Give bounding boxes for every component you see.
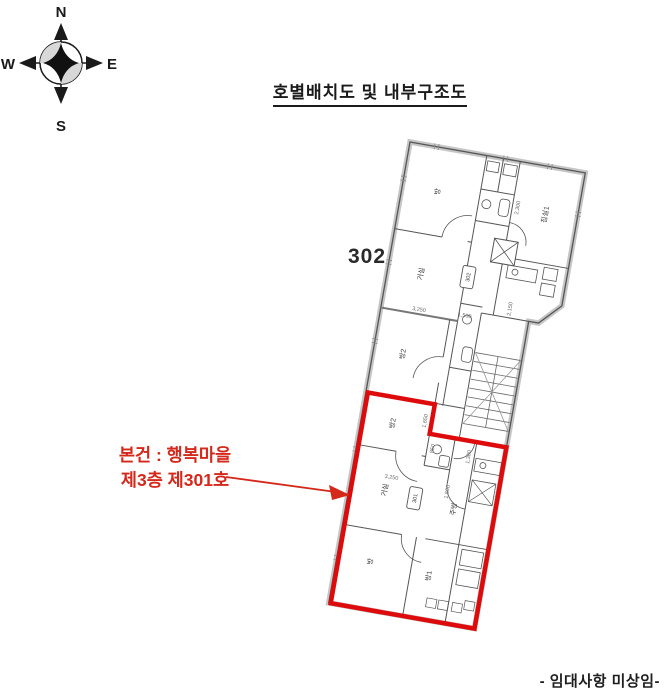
footer-note: - 임대사항 미상임-: [498, 670, 660, 691]
page: N S W E 호별배치도 및 내부구조도: [0, 0, 665, 700]
subject-note: 본건 : 행복마을 제3층 제301호: [70, 443, 280, 493]
building-plan: 302: [326, 139, 589, 635]
floor-plan-drawing: 302: [0, 0, 665, 700]
subject-note-line1: 본건 : 행복마을: [70, 443, 280, 468]
subject-note-line2: 제3층 제301호: [70, 468, 280, 493]
unit-302-label: 302: [348, 245, 396, 269]
